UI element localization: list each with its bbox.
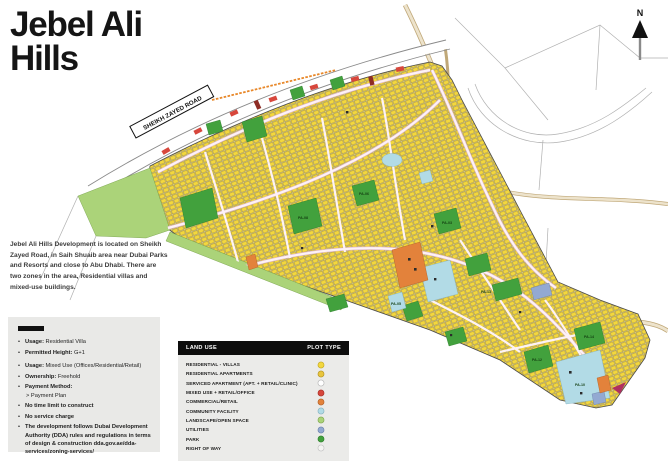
plot-type-swatch [317,398,325,406]
plot-type-swatch [317,370,325,378]
list-item: No time limit to construct [18,402,151,410]
legend-row: SERVICED APARTMENT (APT. + RETAIL/CLINIC… [186,379,341,388]
list-item: Usage: Mixed Use (Offices/Residential/Re… [18,362,151,370]
legend-row: COMMUNITY FACILITY [186,406,341,415]
legend-label: RESIDENTIAL APARTMENTS [186,371,253,376]
area-label: PA-03 [442,221,452,225]
plot-type-swatch [317,379,325,387]
area-label: PA-06 [359,192,369,196]
plot-type-swatch [317,416,325,424]
item-label: Payment Method: [25,384,72,390]
legend-label: RIGHT OF WAY [186,446,221,451]
item-value: Freehold [56,374,80,380]
item-label: Usage: [25,339,44,345]
list-item: Payment Method: > Payment Plan [18,383,151,400]
page-title-line2: Hills [10,42,142,76]
plot-type-swatch [317,435,325,443]
item-label: Ownership: [25,374,56,380]
plot-type-swatch [317,361,325,369]
north-label: N [629,8,651,18]
item-value: G+1 [72,350,85,356]
legend-label: COMMERCIAL/RETAIL [186,399,238,404]
plot-type-swatch [317,426,325,434]
area-label: PA-08 [298,216,308,220]
list-item: No service charge [18,413,151,421]
list-item: Usage: Residential Villa [18,338,151,346]
legend-row: LANDSCAPE/OPEN SPACE [186,416,341,425]
page-title-line1: Jebel Ali [10,8,142,42]
legend-row: RESIDENTIAL - VILLAS [186,360,341,369]
item-value: Residential Villa [44,339,86,345]
legend-label: RESIDENTIAL - VILLAS [186,362,240,367]
legend-row: MIXED USE + RETAIL/OFFICE [186,388,341,397]
svg-text:SHEIKH ZAYED ROAD: SHEIKH ZAYED ROAD [142,95,204,132]
plot-type-swatch [317,444,325,452]
north-indicator: N [629,8,651,67]
area-label: PA-12 [532,358,542,362]
legend-header: LAND USE PLOT TYPE [178,341,349,355]
legend-label: UTILITIES [186,427,209,432]
legend-label: LANDSCAPE/OPEN SPACE [186,418,249,423]
legend-row: RESIDENTIAL APARTMENTS [186,369,341,378]
legend-row: COMMERCIAL/RETAIL [186,397,341,406]
item-label: Permitted Height: [25,350,72,356]
info-box: Usage: Residential Villa Permitted Heigh… [8,317,160,452]
info-box-dash [18,326,44,331]
item-label: No service charge [25,414,74,420]
legend-header-plot-type: PLOT TYPE [307,345,341,351]
legend-label: MIXED USE + RETAIL/OFFICE [186,390,255,395]
land-use-legend: LAND USE PLOT TYPE RESIDENTIAL - VILLAS … [178,341,349,461]
area-label: PA-13 [481,290,491,294]
info-list: Usage: Residential Villa Permitted Heigh… [18,338,151,457]
area-label: PA-14 [584,335,594,339]
description-text: Jebel Ali Hills Development is located o… [10,240,168,293]
legend-row: PARK [186,434,341,443]
item-label: No time limit to construct [25,403,94,409]
legend-label: SERVICED APARTMENT (APT. + RETAIL/CLINIC… [186,381,298,386]
area-label: PA-05 [391,302,401,306]
legend-label: COMMUNITY FACILITY [186,409,239,414]
legend-body: RESIDENTIAL - VILLAS RESIDENTIAL APARTME… [178,355,349,461]
payment-plan-subline: > Payment Plan [25,392,151,400]
plot-type-swatch [317,389,325,397]
legend-header-land-use: LAND USE [186,345,217,351]
page-title: Jebel Ali Hills [10,8,142,77]
plot-type-swatch [317,407,325,415]
item-value: Mixed Use (Offices/Residential/Retail) [44,363,141,369]
list-item: Ownership: Freehold [18,373,151,381]
legend-row: UTILITIES [186,425,341,434]
north-arrow-icon [630,18,650,62]
list-item: Permitted Height: G+1 [18,349,151,357]
item-label: The development follows Dubai Developmen… [25,424,151,455]
area-label: PA-10 [575,383,585,387]
legend-label: PARK [186,437,199,442]
item-label: Usage: [25,363,44,369]
